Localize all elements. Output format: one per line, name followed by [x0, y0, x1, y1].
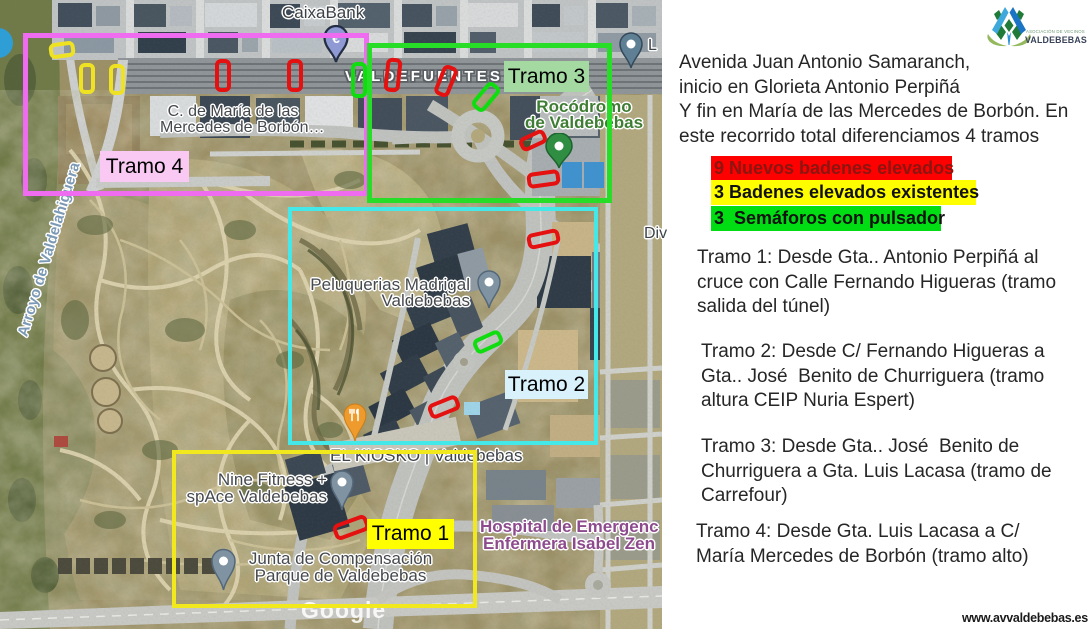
- svg-text:VALDEBEBAS: VALDEBEBAS: [1025, 35, 1087, 45]
- svg-text:ASOCIACIÓN DE VECINOS: ASOCIACIÓN DE VECINOS: [1026, 29, 1085, 34]
